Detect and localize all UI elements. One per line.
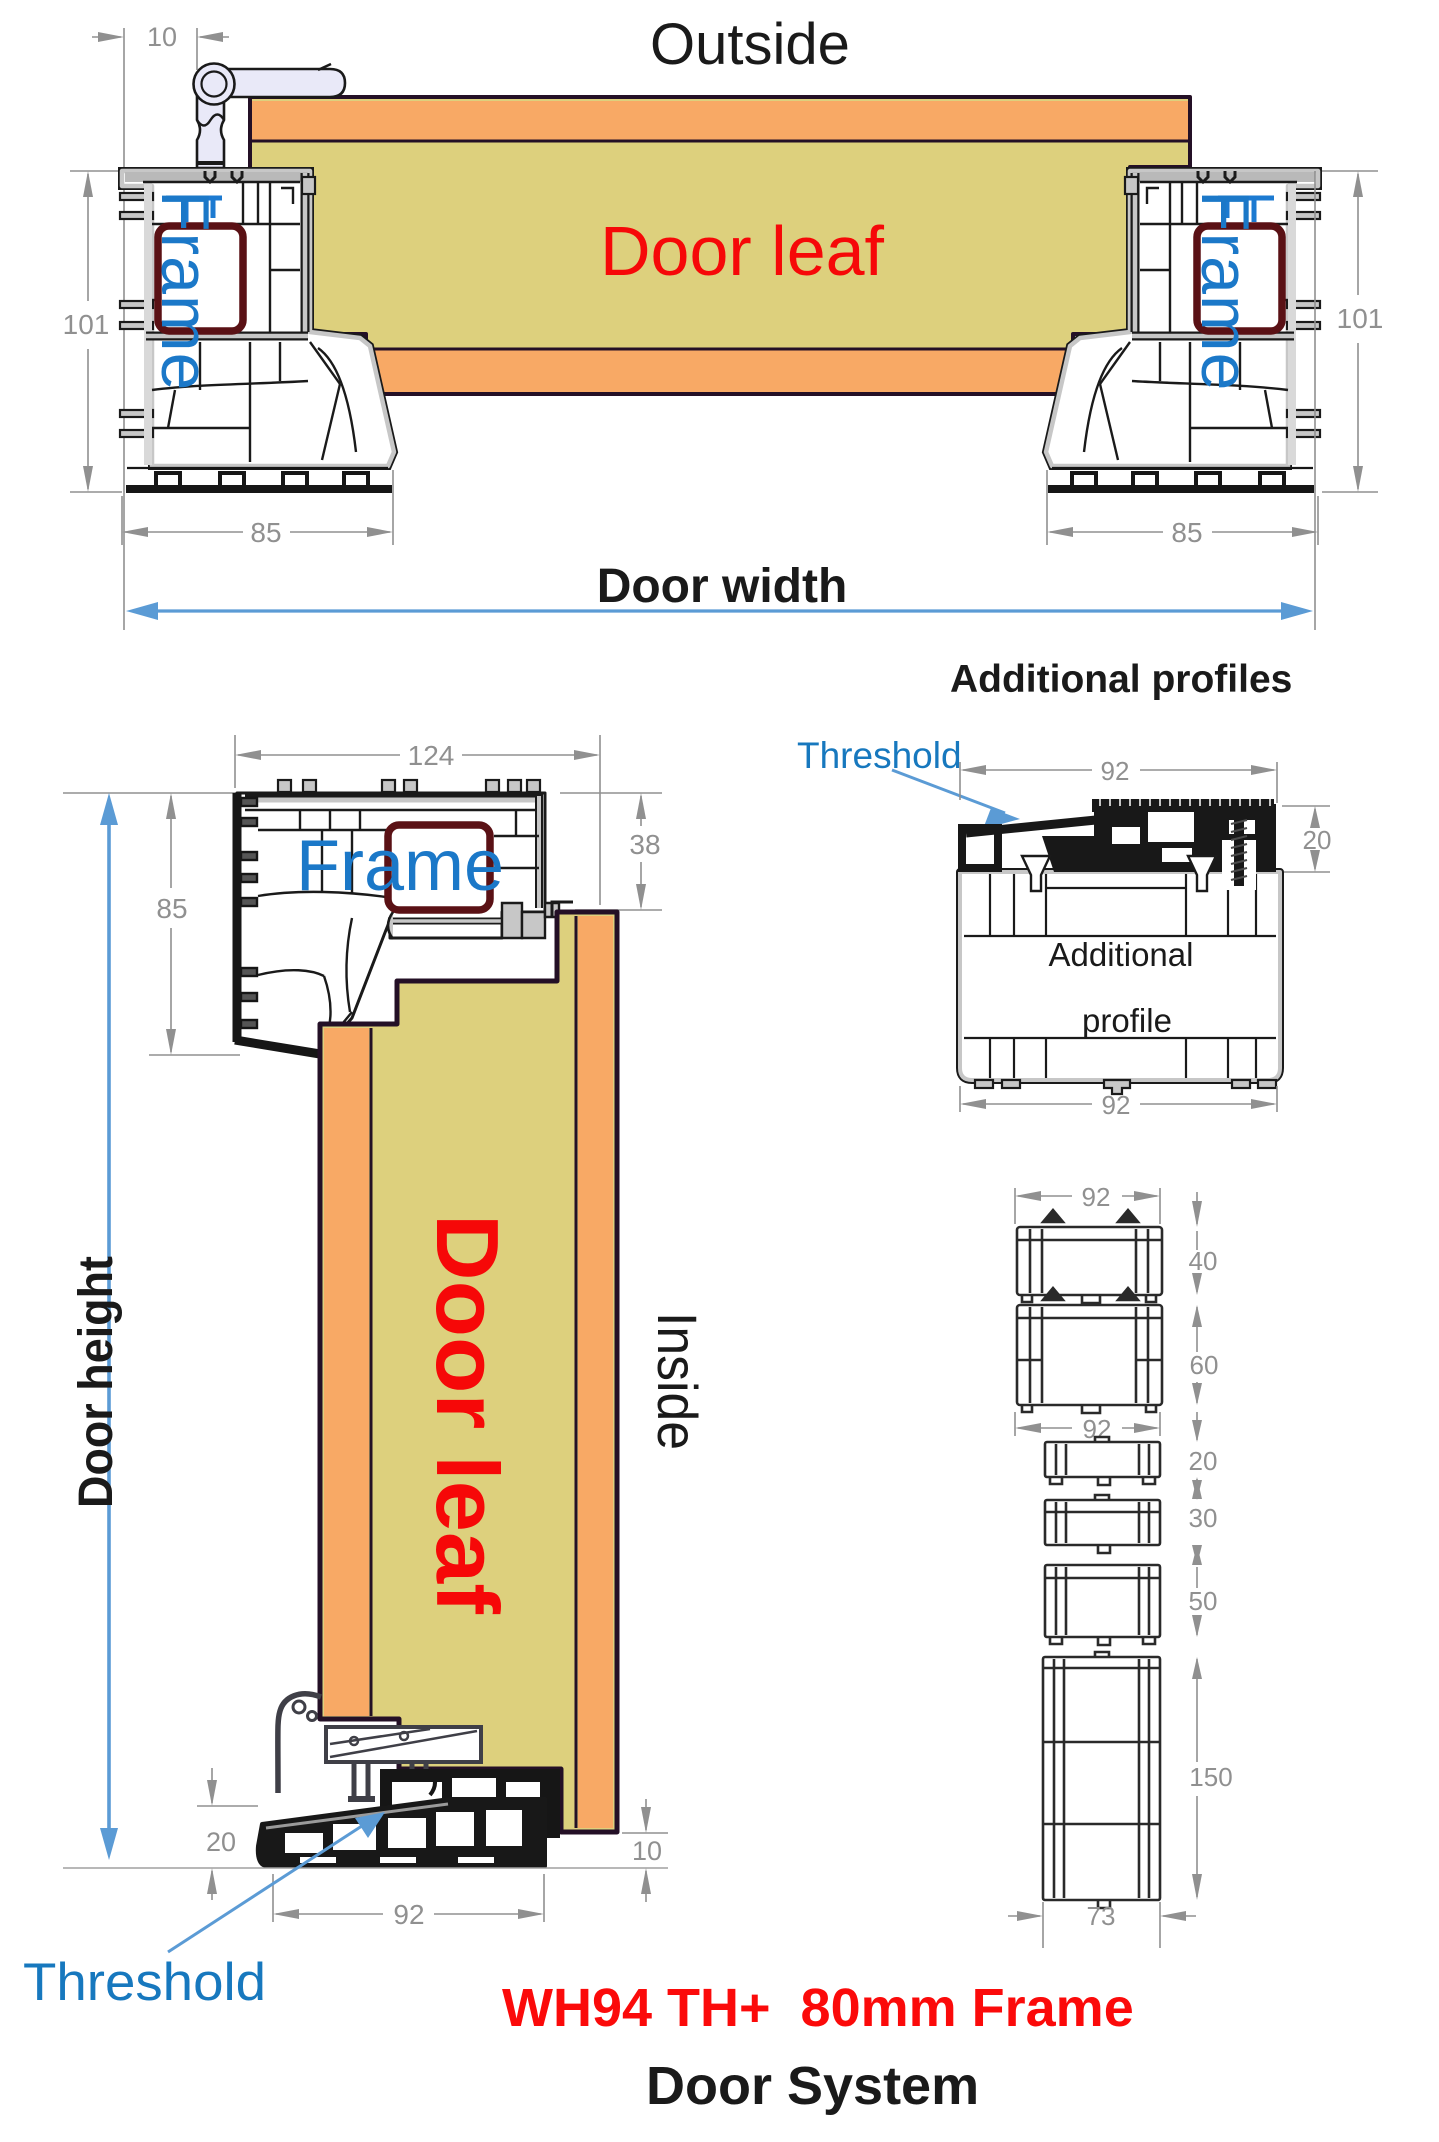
- svg-text:Frame: Frame: [1187, 190, 1263, 391]
- svg-text:50: 50: [1189, 1586, 1218, 1616]
- svg-text:Door leaf: Door leaf: [600, 212, 885, 290]
- svg-text:Frame: Frame: [296, 826, 504, 906]
- svg-text:Door width: Door width: [597, 560, 848, 613]
- svg-text:30: 30: [1189, 1503, 1218, 1533]
- svg-text:92: 92: [1082, 1182, 1111, 1212]
- svg-text:Door System: Door System: [646, 2056, 979, 2116]
- svg-text:92: 92: [1101, 756, 1130, 786]
- svg-text:85: 85: [1171, 517, 1202, 548]
- svg-text:Threshold: Threshold: [797, 735, 962, 776]
- svg-text:150: 150: [1189, 1762, 1232, 1792]
- svg-text:92: 92: [1083, 1414, 1112, 1444]
- svg-text:10: 10: [632, 1836, 662, 1866]
- svg-text:124: 124: [408, 740, 455, 771]
- svg-text:101: 101: [1337, 303, 1384, 334]
- svg-text:20: 20: [206, 1827, 236, 1857]
- svg-text:10: 10: [147, 22, 177, 52]
- svg-text:60: 60: [1190, 1350, 1219, 1380]
- svg-text:Frame: Frame: [147, 190, 223, 391]
- svg-text:Additional: Additional: [1049, 936, 1194, 973]
- svg-text:Threshold: Threshold: [23, 1953, 266, 2012]
- svg-text:Outside: Outside: [650, 12, 850, 77]
- svg-text:Door leaf: Door leaf: [418, 1214, 517, 1615]
- svg-text:20: 20: [1303, 825, 1332, 855]
- svg-text:85: 85: [250, 517, 281, 548]
- svg-text:Door height: Door height: [70, 1256, 123, 1508]
- svg-text:20: 20: [1189, 1446, 1218, 1476]
- svg-text:101: 101: [63, 309, 110, 340]
- svg-text:Inside: Inside: [646, 1312, 709, 1450]
- svg-text:92: 92: [393, 1899, 424, 1930]
- svg-text:73: 73: [1087, 1901, 1116, 1931]
- svg-text:40: 40: [1189, 1246, 1218, 1276]
- svg-text:Additional profiles: Additional profiles: [950, 658, 1292, 701]
- svg-text:85: 85: [156, 893, 187, 924]
- svg-text:WH94 TH+ 80mm Frame: WH94 TH+ 80mm Frame: [502, 1978, 1134, 2038]
- svg-text:38: 38: [629, 829, 660, 860]
- svg-text:profile: profile: [1082, 1002, 1172, 1039]
- svg-text:92: 92: [1102, 1090, 1131, 1120]
